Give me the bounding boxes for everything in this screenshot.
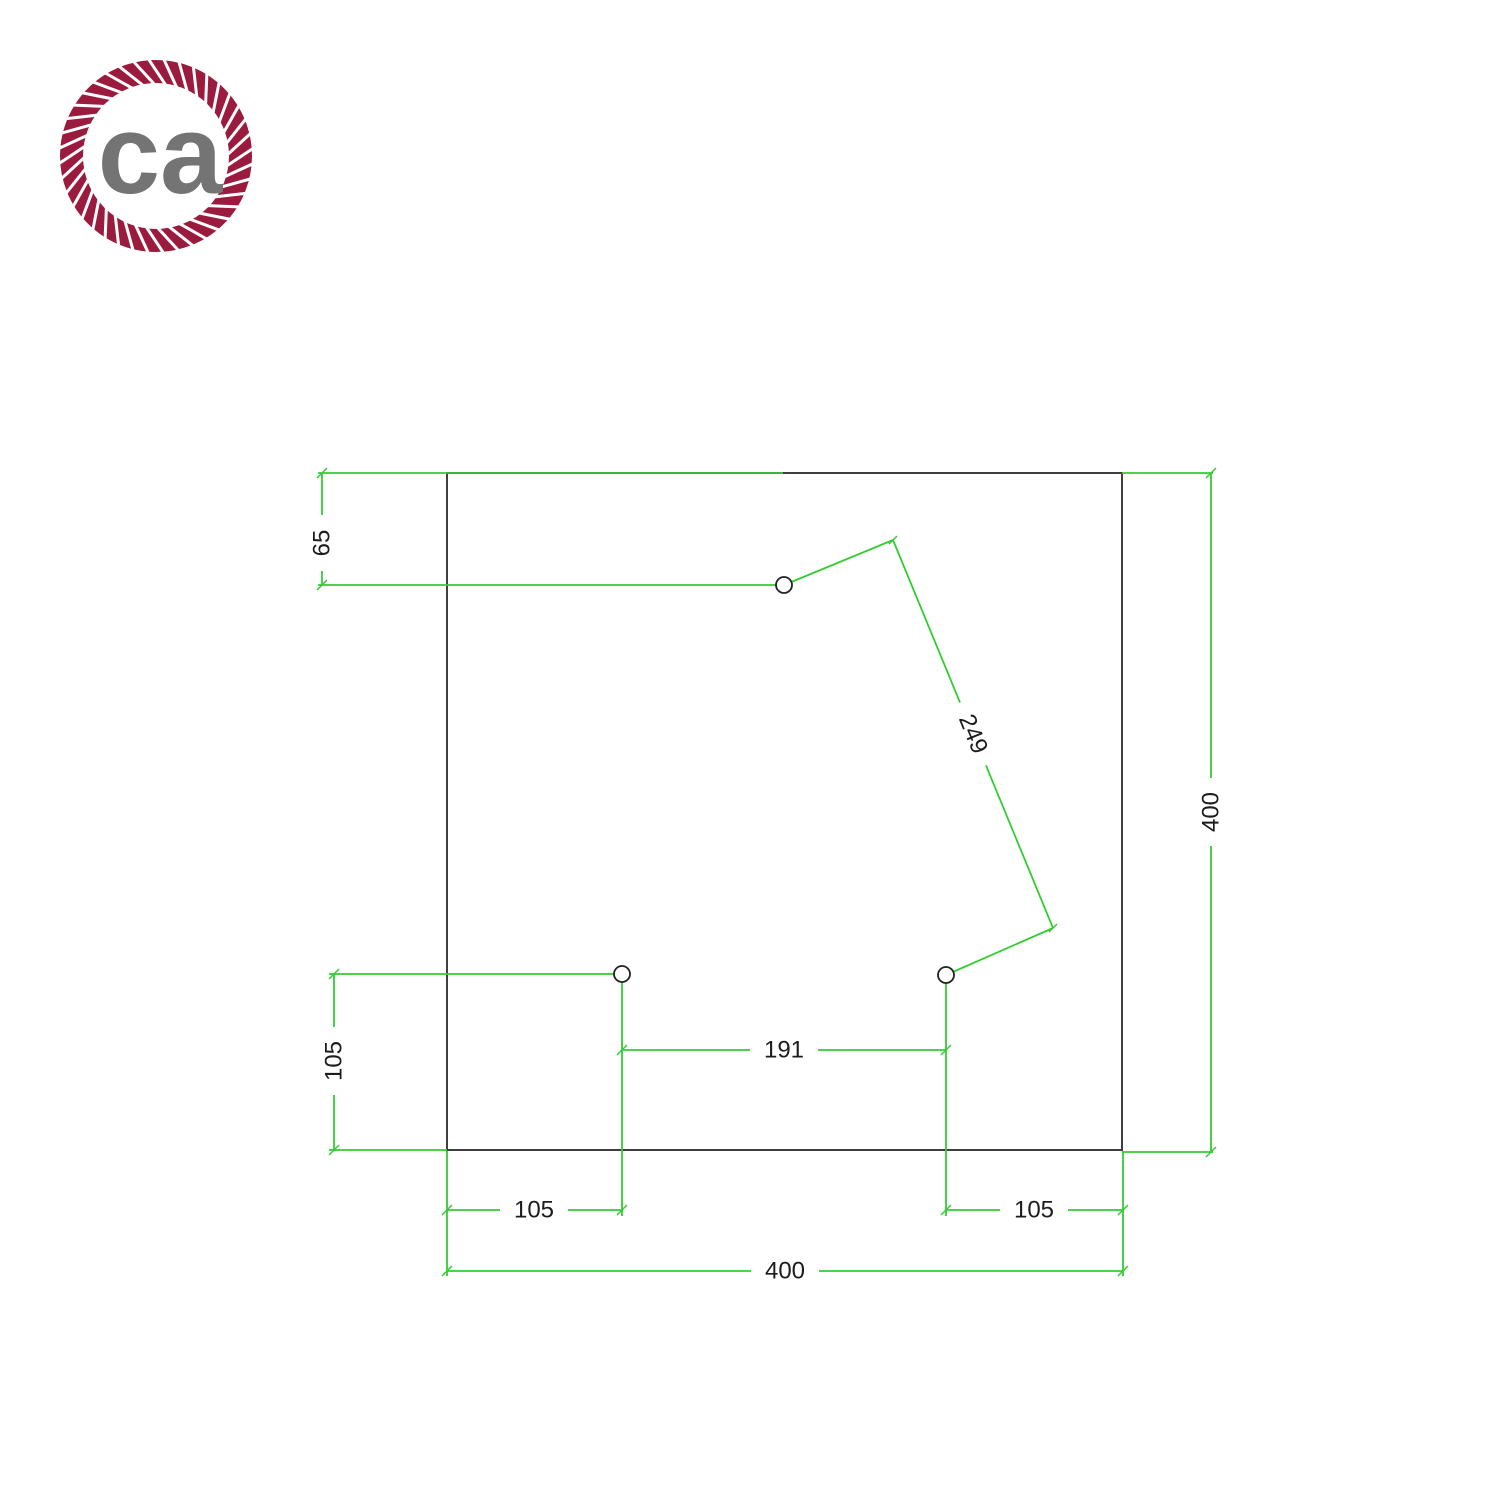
technical-drawing-canvas: ca (0, 0, 1500, 1500)
dim-label-400-bottom: 400 (765, 1258, 805, 1285)
dim-label-group-105-left: 105 (319, 1027, 349, 1095)
dim-label-191: 191 (764, 1037, 804, 1064)
dim-label-group-105-bottom-left: 105 (500, 1195, 568, 1225)
ext-line-diag-bottom (946, 928, 1053, 975)
dim-label-105-left: 105 (321, 1041, 348, 1081)
dim-tick (1049, 924, 1057, 932)
dim-label-group-249: 249 (946, 697, 1000, 771)
dim-ticks (317, 468, 1216, 1276)
hole-bottom-right (938, 967, 954, 983)
logo-text: ca (98, 92, 223, 217)
dim-label-65: 65 (309, 530, 336, 557)
drawing-page: ca (0, 0, 1500, 1500)
dim-label-group-65: 65 (307, 515, 337, 571)
dim-label-105-bottom-left: 105 (514, 1197, 554, 1224)
dim-tick (889, 536, 897, 544)
dim-label-400-right: 400 (1198, 792, 1225, 832)
dim-label-105-bottom-right: 105 (1014, 1197, 1054, 1224)
dim-label-group-191: 191 (750, 1035, 818, 1065)
brand-logo: ca (57, 57, 255, 255)
dim-label-group-105-bottom-right: 105 (1000, 1195, 1068, 1225)
dim-label-group-400-right: 400 (1196, 778, 1226, 846)
dim-label-group-400-bottom: 400 (751, 1256, 819, 1286)
ext-line-diag-top (784, 540, 893, 585)
hole-bottom-left (614, 966, 630, 982)
hole-top (776, 577, 792, 593)
dimension-lines (317, 468, 1216, 1276)
